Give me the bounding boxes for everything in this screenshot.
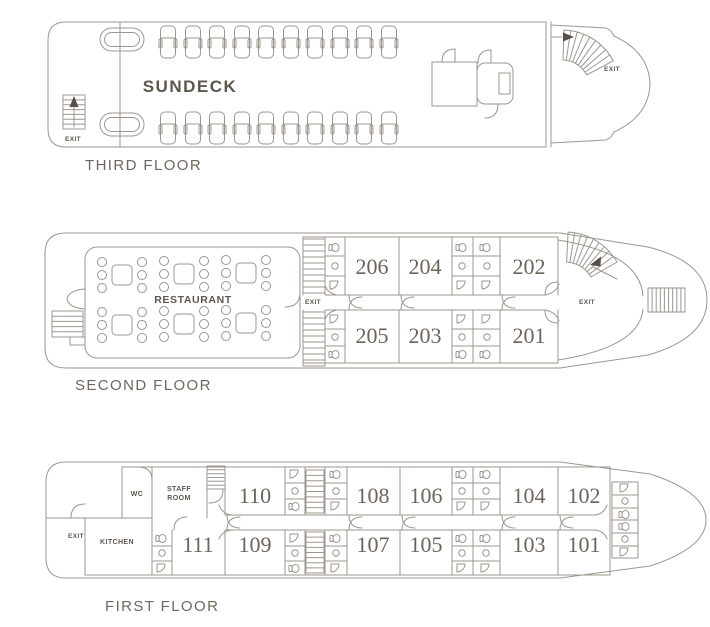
dining-table-icon — [222, 306, 271, 341]
sink-icon — [292, 488, 298, 494]
up-arrow-icon — [70, 96, 79, 107]
toilet-icon — [156, 535, 166, 543]
floor-label-first: FIRST FLOOR — [105, 598, 219, 615]
wc-label: WC — [131, 491, 143, 498]
lounger-icon — [282, 26, 300, 58]
sink-icon — [484, 263, 490, 269]
lounger-icon — [380, 26, 398, 58]
lounger-icon — [282, 112, 300, 144]
cabin-111-label: 111 — [182, 532, 213, 557]
sink-icon — [459, 488, 465, 494]
shower-icon — [331, 502, 339, 510]
sink-icon — [459, 550, 465, 556]
toilet-icon — [480, 244, 490, 252]
stairs-icon — [52, 311, 83, 337]
lounger-icon — [306, 26, 324, 58]
shower-icon — [157, 564, 165, 572]
lounger-icon — [233, 26, 251, 58]
toilet-icon — [329, 351, 339, 359]
dining-table-icon — [222, 256, 271, 291]
lounger-icon — [331, 112, 349, 144]
lounger-icon — [184, 112, 202, 144]
shower-icon — [482, 281, 490, 289]
stairs-icon — [303, 312, 325, 366]
shower-icon — [457, 315, 465, 323]
arrow-icon — [563, 33, 574, 42]
deck-plan-page: EXIT SUNDECK EXIT THIRD FLOOR — [0, 0, 710, 627]
restaurant-label: RESTAURANT — [154, 294, 232, 306]
cabin-205-label: 205 — [356, 323, 389, 348]
exit-label-mid-2: EXIT — [305, 299, 321, 306]
door-arc-icon — [478, 50, 491, 63]
gangway-icon — [648, 288, 685, 312]
kitchen-label: KITCHEN — [100, 539, 134, 546]
sink-icon — [484, 334, 490, 340]
toilet-icon — [480, 535, 490, 543]
cabin-104-label: 104 — [513, 483, 546, 508]
door-arc-icon — [285, 292, 300, 307]
cabin-109-label: 109 — [239, 532, 272, 557]
deck-first: EXIT KITCHEN WC STAFF ROOM — [46, 462, 706, 615]
dining-table-icon — [98, 258, 147, 293]
door-arc-icon — [71, 504, 85, 518]
exit-label-bow-2: EXIT — [579, 299, 595, 306]
cabin-103-label: 103 — [513, 532, 546, 557]
shower-icon — [457, 281, 465, 289]
toilet-icon — [456, 351, 466, 359]
toilet-icon — [330, 535, 340, 543]
toilet-icon — [330, 471, 340, 479]
shower-icon — [290, 470, 298, 478]
sink-icon — [483, 488, 489, 494]
sink-icon — [332, 334, 338, 340]
deck-third: EXIT SUNDECK EXIT THIRD FLOOR — [48, 22, 650, 174]
sink-icon — [333, 550, 339, 556]
dining-table-icon — [160, 307, 209, 342]
exit-label-stern-1: EXIT — [68, 533, 84, 540]
raft-icon — [100, 113, 144, 136]
cabin-105-label: 105 — [410, 532, 443, 557]
bow-outline — [551, 25, 650, 143]
exit-label-stern-3: EXIT — [65, 136, 81, 143]
sink-icon — [459, 334, 465, 340]
cabin-108-label: 108 — [357, 483, 390, 508]
cabin-201-label: 201 — [513, 323, 546, 348]
floor-label-second: SECOND FLOOR — [75, 377, 212, 394]
sundeck-label: SUNDECK — [143, 77, 238, 96]
lounger-icon — [380, 112, 398, 144]
toilet-icon — [456, 244, 466, 252]
toilet-icon — [289, 503, 299, 511]
toilet-icon — [289, 565, 299, 573]
shower-icon — [330, 315, 338, 323]
lounger-icon — [233, 112, 251, 144]
lounger-row-top — [159, 26, 398, 58]
sink-icon — [622, 536, 628, 542]
lounger-icon — [257, 26, 275, 58]
double-door-icon — [67, 289, 85, 309]
cabin-doors — [349, 282, 558, 323]
cabin-107-label: 107 — [357, 532, 390, 557]
cabin-202-label: 202 — [513, 254, 546, 279]
cabin-doors — [174, 515, 573, 530]
deckhouse — [432, 49, 513, 118]
lounger-icon — [159, 26, 177, 58]
ship-deck-plan: EXIT SUNDECK EXIT THIRD FLOOR — [0, 0, 710, 627]
sink-icon — [622, 498, 628, 504]
lounger-row-bottom — [159, 112, 398, 144]
cabin-110-label: 110 — [239, 483, 271, 508]
dining-table-icon — [98, 308, 147, 343]
floor-label-third: THIRD FLOOR — [85, 157, 202, 174]
lounger-icon — [208, 112, 226, 144]
lounger-icon — [306, 112, 324, 144]
toilet-icon — [619, 511, 629, 519]
stairs-icon — [303, 239, 325, 293]
shower-icon — [620, 548, 628, 556]
toilet-icon — [480, 471, 490, 479]
cabin-206-label: 206 — [356, 254, 389, 279]
shower-icon — [481, 564, 489, 572]
shower-icon — [457, 564, 465, 572]
sink-icon — [332, 263, 338, 269]
toilet-icon — [619, 523, 629, 531]
lounger-icon — [257, 112, 275, 144]
door-arc-icon — [442, 49, 455, 62]
sink-icon — [292, 550, 298, 556]
shower-icon — [620, 484, 628, 492]
lounger-icon — [331, 26, 349, 58]
lounger-icon — [355, 26, 373, 58]
lounger-icon — [208, 26, 226, 58]
shower-icon — [457, 502, 465, 510]
stern-rooms — [47, 467, 207, 575]
door-arc-icon — [209, 490, 223, 503]
sink-icon — [483, 550, 489, 556]
toilet-icon — [480, 351, 490, 359]
toilet-icon — [329, 244, 339, 252]
shower-icon — [481, 502, 489, 510]
exit-label-bow-3: EXIT — [604, 66, 620, 73]
toilet-icon — [456, 535, 466, 543]
raft-icon — [100, 28, 144, 51]
hull-outline — [46, 462, 706, 578]
door-arc-icon — [138, 467, 152, 480]
shower-icon — [290, 534, 298, 542]
cabin-203-label: 203 — [409, 323, 442, 348]
cabin-204-label: 204 — [409, 254, 442, 279]
deck-second: RESTAURANT EXIT — [45, 232, 707, 394]
cabin-102-label: 102 — [568, 483, 601, 508]
lounger-icon — [184, 26, 202, 58]
sink-icon — [333, 488, 339, 494]
cabin-106-label: 106 — [410, 483, 443, 508]
shower-icon — [331, 564, 339, 572]
cabin-101-label: 101 — [568, 532, 601, 557]
lounger-icon — [159, 112, 177, 144]
door-arc-icon — [485, 104, 498, 118]
sink-icon — [159, 550, 165, 556]
shower-icon — [330, 281, 338, 289]
dining-table-icon — [160, 257, 209, 292]
shower-icon — [482, 315, 490, 323]
lounger-icon — [355, 112, 373, 144]
staff-room-label: STAFF — [167, 486, 191, 493]
sink-icon — [459, 263, 465, 269]
toilet-icon — [456, 471, 466, 479]
svg-text:ROOM: ROOM — [167, 495, 190, 502]
